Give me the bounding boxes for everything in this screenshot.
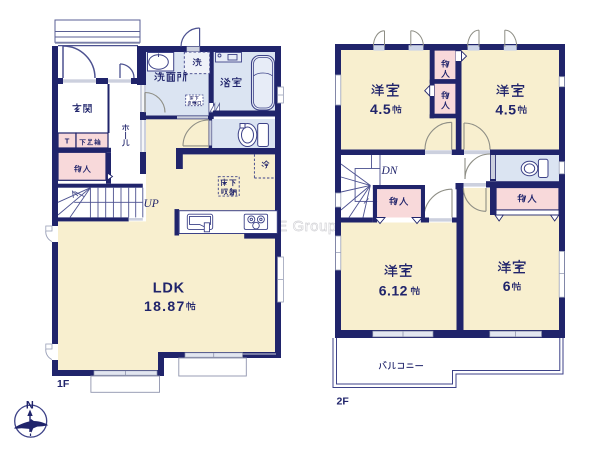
- svg-text:LDK: LDK: [153, 281, 185, 297]
- svg-text:6.12: 6.12: [379, 283, 408, 299]
- svg-text:1F: 1F: [57, 378, 70, 390]
- svg-text:UP: UP: [144, 198, 159, 210]
- svg-text:4.5: 4.5: [495, 101, 516, 117]
- svg-text:2F: 2F: [337, 396, 350, 408]
- svg-text:T: T: [65, 137, 70, 146]
- svg-text:18.87: 18.87: [144, 298, 186, 314]
- svg-text:4.5: 4.5: [370, 101, 391, 117]
- svg-text:6: 6: [503, 278, 511, 294]
- svg-text:DN: DN: [381, 165, 399, 177]
- svg-text:N: N: [26, 400, 34, 412]
